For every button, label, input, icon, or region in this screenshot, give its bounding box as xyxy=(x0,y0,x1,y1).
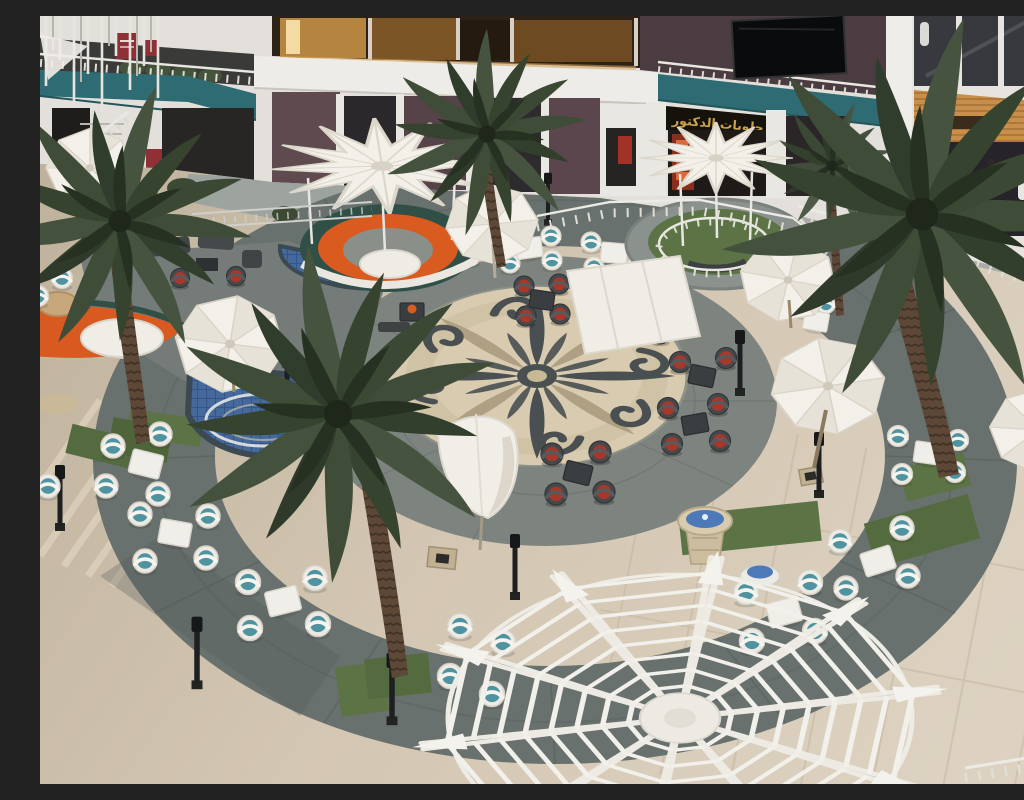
flat-canopy xyxy=(567,256,700,354)
red-poster xyxy=(618,136,632,164)
courtyard-photo: حلويات الدكتور xyxy=(40,16,1024,784)
booth-table xyxy=(360,250,420,278)
left-storefront-glass xyxy=(162,108,254,180)
upper-mannequin xyxy=(920,22,929,46)
wall-screen xyxy=(732,16,847,79)
